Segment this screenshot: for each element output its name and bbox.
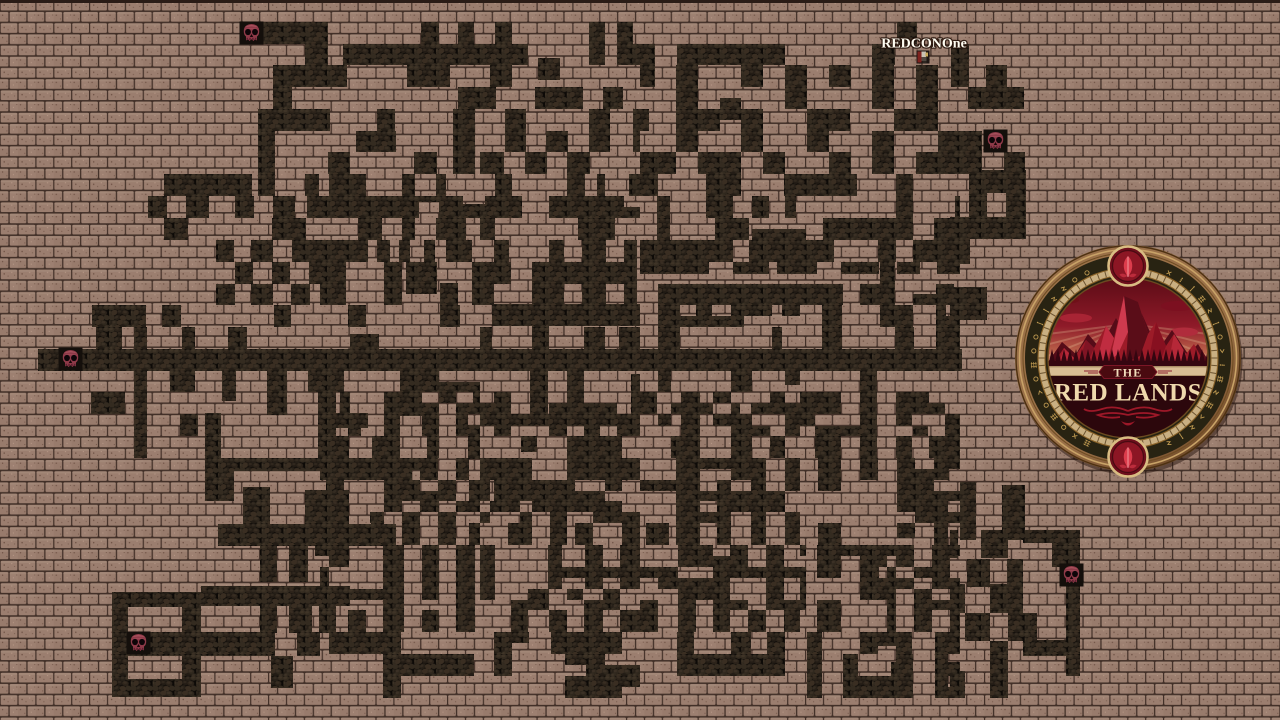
svg-text:THE: THE — [1114, 365, 1143, 379]
svg-text:REDCONOne: REDCONOne — [881, 37, 967, 52]
svg-text:RED LANDS: RED LANDS — [1054, 380, 1202, 407]
